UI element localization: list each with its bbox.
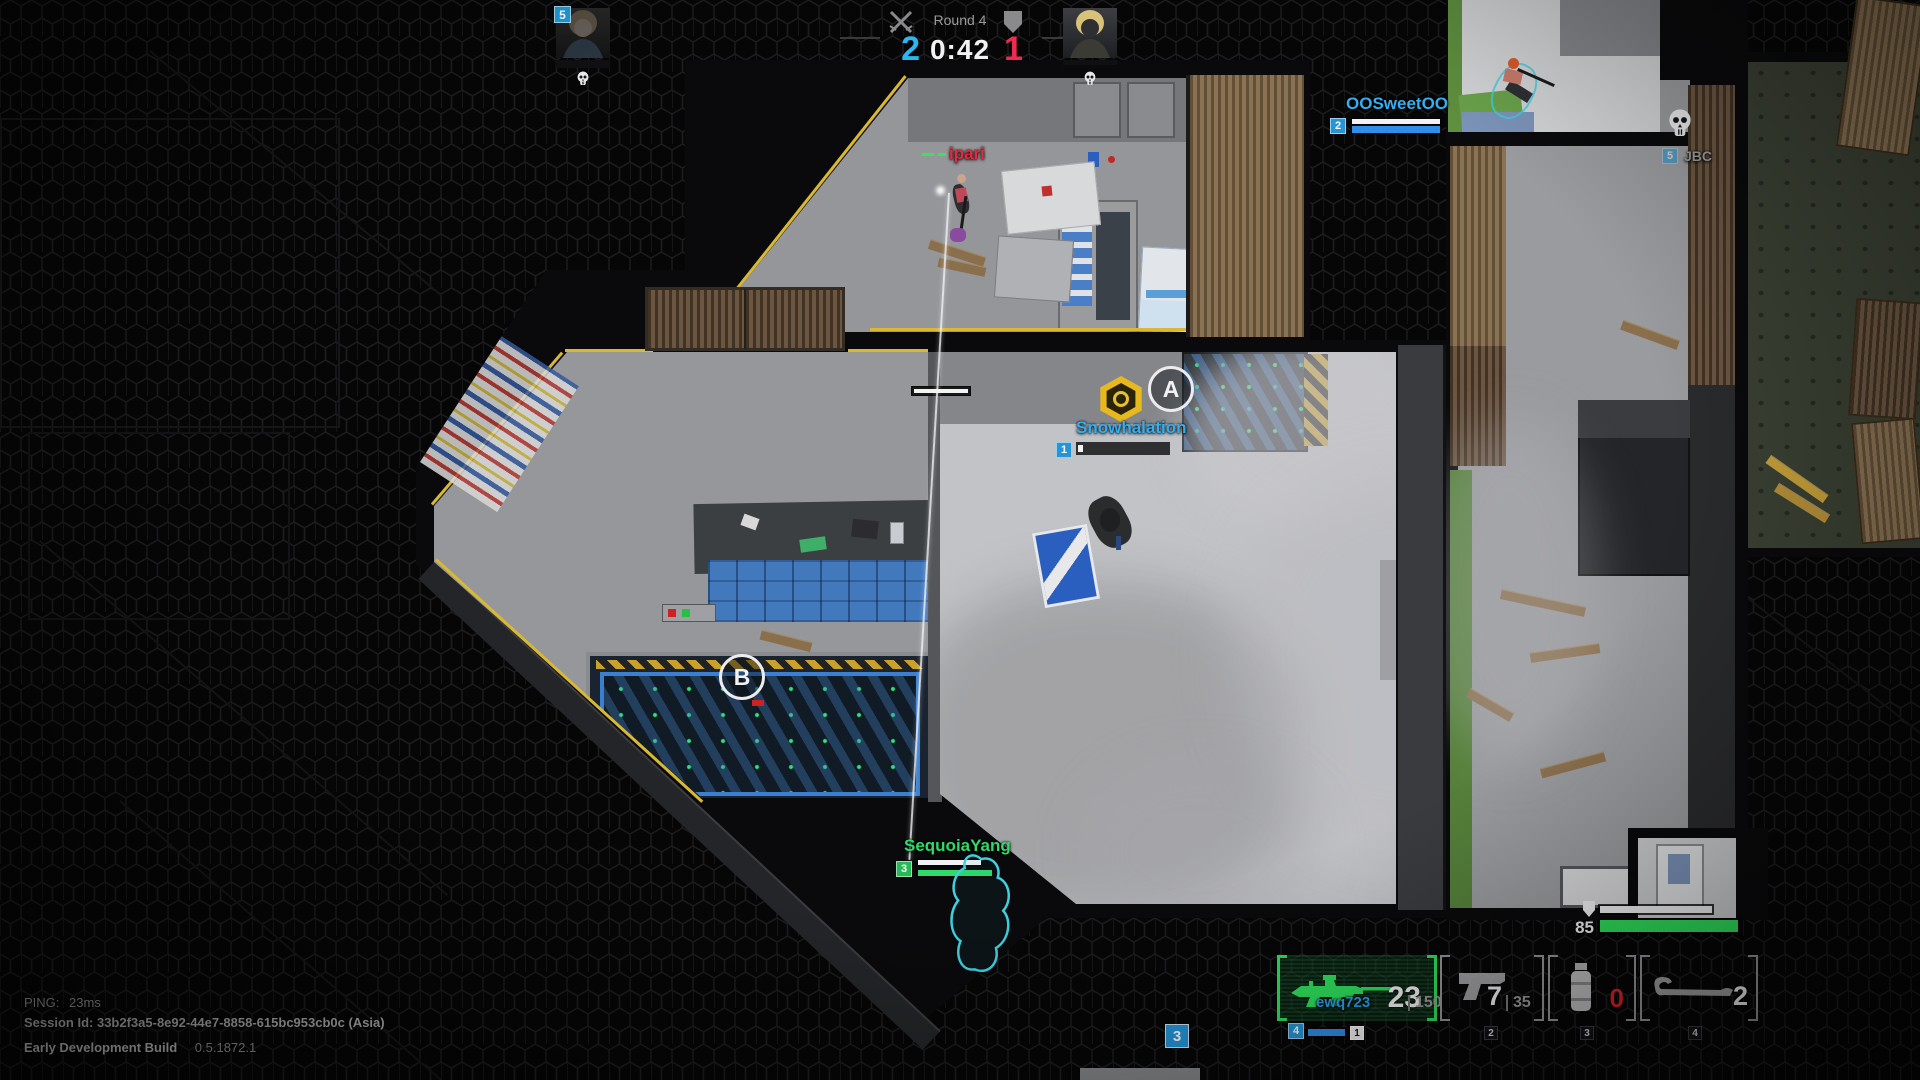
player-number-badge: 3 [896,861,912,877]
white-box-stack [1001,161,1101,234]
scoreboard: Round 4 2 0:42 1 [830,0,1090,80]
death-skull-icon [1666,108,1694,140]
slot-bracket [1626,955,1636,1021]
enemy-nameplate-ipari: ipari [905,144,1025,166]
pallet-stack [1851,417,1920,544]
weapon-loadout: 23 150 1 ewq723 4 7 35 2 [1270,950,1770,1050]
red-button [668,609,676,617]
corridor-south-wall-band [1448,132,1690,146]
dead-player-name: JBC [1684,148,1712,164]
player-number-badge: 4 [1288,1023,1304,1039]
bench-item-dark [851,519,879,540]
lab-bench-cabinets [708,560,930,622]
pistol-ammo: 7 [1472,983,1502,1010]
slot-bracket [1748,955,1758,1021]
box-red-mark [1042,186,1053,197]
vitals: 85 [1570,896,1750,940]
pallet-stack [1848,298,1920,420]
ally-name: ewq723 [1316,994,1370,1011]
center-corridor-wall [1398,345,1446,910]
background-room-outline [0,118,340,428]
nameplate-bars [1306,1027,1350,1038]
slot-bracket [1534,955,1544,1021]
slot-key-4: 4 [1688,1026,1702,1040]
armor-bar [1598,904,1714,915]
door-split-line [744,289,746,349]
player-health-bars [1063,60,1117,65]
ally-nameplate-ewq723: ewq723 4 [1284,994,1394,1042]
enemy-name: ipari [949,144,985,164]
ping-value: 23ms [69,995,101,1010]
rifle-reserve: 150 [1408,995,1442,1011]
elevator-door [1127,82,1175,138]
left-player-portrait-5: 5 [556,8,610,86]
debug-info: PING: 23ms Session Id: 33b2f3a5-8e92-44e… [24,995,444,1065]
defender-figure [1086,488,1138,574]
player-number-badge: 5 [1662,148,1678,164]
health-bar [1598,918,1740,934]
weapon-slot-grenade[interactable]: 0 [1548,955,1636,1021]
nameplate-bars [1350,117,1442,135]
grenade-icon [1566,962,1596,1016]
player-health-bars [556,60,610,68]
player-number-badge: 5 [554,6,571,23]
soldier-character [1492,48,1572,132]
copier-table [994,235,1074,302]
melee-count: 2 [1726,983,1748,1010]
office-east-wood-wall [1186,75,1304,337]
lab-floor-trim [848,349,928,352]
site-b-marker: B [719,654,765,700]
ally-nameplate-snowhalation: Snowhalation 1 [1056,418,1186,460]
office-floor-trim [870,328,1186,331]
nameplate-bars [1076,442,1170,455]
green-button [682,609,690,617]
build-row: Early Development Build 0.5.1872.1 [24,1040,256,1055]
build-label: Early Development Build [24,1040,177,1055]
elevator-door [1073,82,1121,138]
ally-name: Snowhalation [1076,418,1187,438]
player-number-badge: 2 [1330,118,1346,134]
spectate-dash [938,153,946,156]
wall-sign-red [1108,156,1115,163]
ally-name: OOSweetOO [1346,94,1448,114]
pit-red-light [752,700,764,706]
game-screen: ipari OOSweetOO 2 5 JBC A Snowhalation 1… [0,0,1920,1080]
ping-row: PING: 23ms [24,995,101,1010]
session-id: Session Id: 33b2f3a5-8e92-44e7-8858-615b… [24,1015,385,1030]
ping-label: PING: [24,995,59,1010]
score-divider-dash [840,37,880,39]
health-number: 85 [1570,918,1594,938]
pistol-reserve: 35 [1506,995,1531,1011]
slot-bracket [1427,955,1437,1021]
smoke-cloud [1420,420,1600,760]
right-team-score: 1 [1004,32,1036,66]
dark-crate-top [1578,400,1690,438]
spectate-dash [922,153,934,156]
slot-bracket [1548,955,1558,1021]
site-a-marker: A [1148,366,1194,412]
right-player-portrait-5 [1063,8,1117,86]
slot-bracket [1640,955,1650,1021]
shelf-dark-panel [1096,212,1130,320]
deployed-gadget-icon [1098,376,1144,422]
round-timer: 0:42 [928,36,992,64]
door-window-blue [1668,854,1690,884]
weapon-slot-melee[interactable]: 2 [1640,955,1758,1021]
build-version: 0.5.1872.1 [195,1040,256,1055]
ally-nameplate-oosweet: OOSweetOO 2 [1330,94,1460,136]
background-room-outline [28,432,290,620]
door-health-bar [911,386,971,396]
wood-plank [760,630,813,652]
player-number-badge: 1 [1056,442,1072,458]
corridor-west-wood-wall [1450,146,1506,346]
top-room-wall [1560,0,1660,56]
player-outline-silhouette [940,850,1026,986]
slot-bracket [1440,955,1450,1021]
slot-key-3: 3 [1580,1026,1594,1040]
armor-shield-icon [1582,900,1596,918]
death-marker-jbc: 5 JBC [1658,108,1728,170]
teammate-floor-badge: 3 [1165,1024,1189,1048]
bottom-edge-door [1080,1068,1200,1080]
portrait-art [1063,8,1117,58]
bench-item-robot [890,522,904,544]
grenade-count: 0 [1602,985,1624,1011]
left-team-score: 2 [888,32,920,66]
lab-floor-trim [565,349,653,352]
round-label: Round 4 [925,12,995,28]
slot-key-2: 2 [1484,1026,1498,1040]
enemy-character [938,166,998,250]
weapon-slot-pistol[interactable]: 7 35 [1440,955,1544,1021]
